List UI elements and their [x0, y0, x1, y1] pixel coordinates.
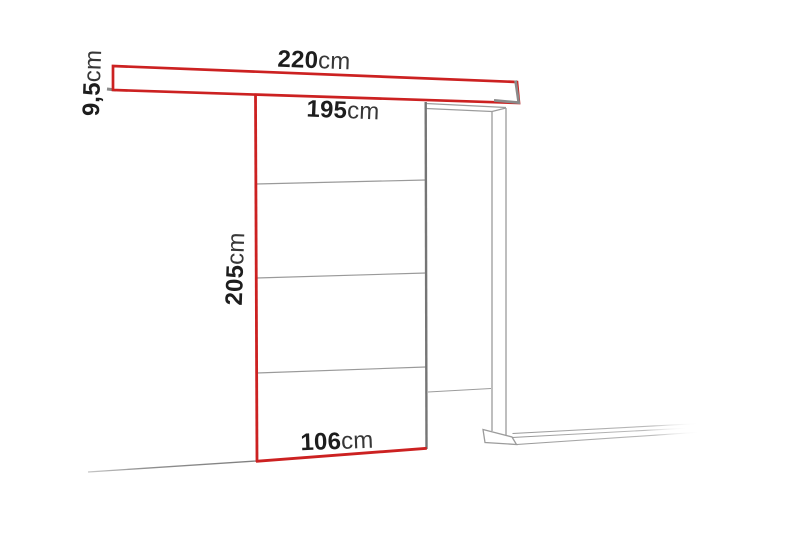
- diagram-canvas: [0, 0, 800, 533]
- dimension-unit: cm: [222, 232, 250, 265]
- frame-lintel-top-line: [426, 104, 506, 108]
- dimension-unit: cm: [318, 47, 351, 75]
- door-left-edge-highlight: [256, 93, 258, 463]
- dimension-value: 220: [277, 46, 319, 74]
- dimension-unit: cm: [79, 49, 107, 82]
- frame-plinth: [483, 430, 517, 445]
- dimension-value: 106: [300, 428, 342, 456]
- dimension-label-door-width: 106cm: [300, 429, 374, 456]
- frame-lintel-corner-line: [492, 108, 506, 112]
- dimension-value: 195: [306, 96, 348, 125]
- floor-line-behind-door: [428, 389, 491, 393]
- frame-lintel-bottom-line: [426, 109, 492, 112]
- door-frame: [426, 104, 702, 445]
- dimension-label-door-height: 205cm: [223, 232, 250, 306]
- skirting-line-3: [517, 432, 703, 445]
- dimension-unit: cm: [341, 427, 374, 455]
- dimension-value: 205: [221, 264, 249, 306]
- dimension-value: 9,5: [78, 82, 106, 117]
- dimension-label-top-width: 195cm: [306, 98, 380, 125]
- skirting-lines: [512, 424, 702, 445]
- dimension-unit: cm: [347, 97, 380, 125]
- door-panel: [255, 93, 427, 463]
- floor-line-left: [88, 461, 256, 472]
- door-right-edge: [426, 102, 427, 449]
- skirting-line-2: [512, 428, 690, 438]
- dimension-label-track-length: 220cm: [277, 48, 351, 75]
- dimension-diagram-page: 220cm 9,5cm 195cm 205cm 106cm: [0, 0, 800, 533]
- door-panel-face: [255, 94, 426, 462]
- dimension-label-track-height: 9,5cm: [80, 49, 106, 116]
